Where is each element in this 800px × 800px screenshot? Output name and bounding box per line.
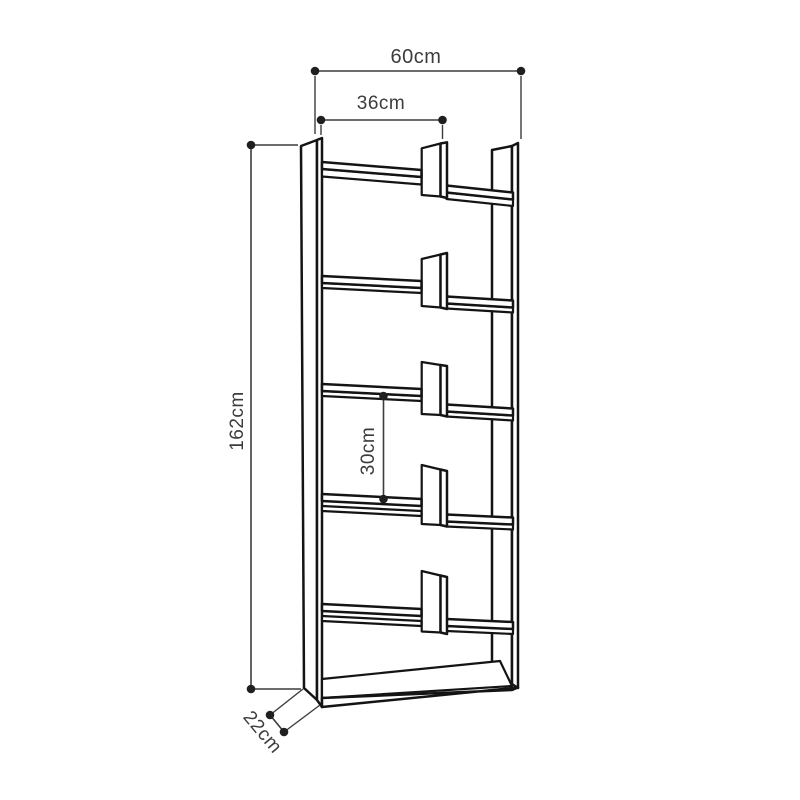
extension-line: [270, 689, 303, 715]
divider-1-front-edge: [441, 142, 448, 198]
shelf-level-5: [322, 571, 513, 634]
divider-3-front-edge: [441, 365, 448, 417]
divider-5-side-face: [422, 571, 441, 633]
depth-label: 22cm: [239, 707, 286, 758]
dimension-total-width: 60cm: [311, 46, 526, 139]
shelf-spacing-label: 30cm: [358, 427, 379, 475]
right-shelf-5-front: [447, 619, 514, 629]
divider-2-front-edge: [441, 253, 448, 309]
dimension-endpoint-dot: [280, 728, 289, 737]
left-shelf-4-underside: [322, 506, 422, 516]
divider-1-side-face: [422, 144, 441, 197]
left-side-panel: [301, 138, 322, 707]
dimension-endpoint-dot: [379, 495, 388, 504]
dimension-shelf-spacing: 30cm: [358, 392, 388, 504]
dimension-endpoint-dot: [266, 711, 275, 720]
dimension-diagram-canvas: 60cm 36cm 162cm 30cm 22cm: [0, 0, 800, 800]
left-shelf-4-front: [322, 494, 422, 506]
left-panel-outer-face: [301, 140, 317, 700]
dimension-depth: 22cm: [239, 689, 320, 758]
left-shelf-5-underside: [322, 616, 422, 626]
left-shelf-5-front: [322, 604, 422, 616]
bookshelf-drawing: [301, 138, 518, 707]
dimension-endpoint-dot: [317, 116, 326, 125]
divider-4-side-face: [422, 465, 441, 525]
dimension-endpoint-dot: [517, 67, 526, 76]
divider-3-side-face: [422, 362, 441, 415]
right-shelf-4-front: [447, 515, 514, 525]
divider-4-front-edge: [441, 470, 448, 527]
dimension-endpoint-dot: [438, 116, 447, 125]
dimension-endpoint-dot: [247, 685, 256, 694]
dimension-total-height: 162cm: [227, 141, 301, 694]
shelf-level-3: [322, 362, 513, 421]
total-height-label: 162cm: [227, 391, 248, 451]
divider-2-side-face: [422, 255, 441, 308]
inner-width-label: 36cm: [357, 93, 405, 114]
total-width-label: 60cm: [391, 46, 442, 68]
bookshelf-diagram-svg: 60cm 36cm 162cm 30cm 22cm: [0, 0, 800, 800]
shelf-level-1: [322, 142, 513, 206]
shelf-level-2: [322, 253, 513, 313]
dimension-endpoint-dot: [311, 67, 320, 76]
dimension-inner-width: 36cm: [317, 93, 447, 139]
base-shelf: [322, 661, 518, 707]
dimension-endpoint-dot: [247, 141, 256, 150]
extension-line: [284, 705, 320, 732]
shelf-level-4: [322, 465, 513, 530]
divider-5-front-edge: [441, 576, 448, 635]
dimension-endpoint-dot: [379, 392, 388, 401]
